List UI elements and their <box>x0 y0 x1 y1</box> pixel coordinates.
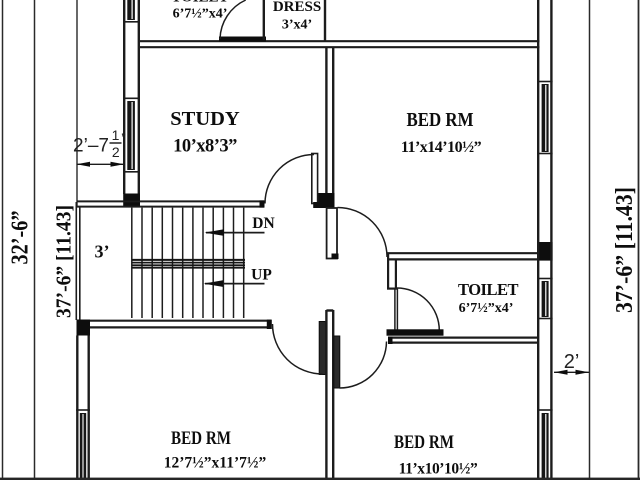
svg-text:2’–7: 2’–7 <box>73 136 109 157</box>
svg-text:37’-6” [11.43]: 37’-6” [11.43] <box>612 187 638 313</box>
svg-text:2: 2 <box>112 144 120 160</box>
svg-text:BED RM: BED RM <box>171 428 231 449</box>
svg-text:TOILET: TOILET <box>458 280 518 299</box>
svg-text:10’x8’3”: 10’x8’3” <box>173 137 237 157</box>
svg-text:2’: 2’ <box>564 351 580 373</box>
svg-text:TOILET: TOILET <box>171 0 228 6</box>
svg-text:1: 1 <box>112 127 120 143</box>
svg-text:6’7½”x4’: 6’7½”x4’ <box>173 7 228 22</box>
svg-text:11’x14’10½”: 11’x14’10½” <box>401 139 482 156</box>
svg-text:11’x10’10½”: 11’x10’10½” <box>399 461 478 478</box>
svg-text:UP: UP <box>251 267 272 284</box>
svg-text:DRESS: DRESS <box>273 0 321 15</box>
svg-text:3’x4’: 3’x4’ <box>282 18 312 33</box>
svg-text:37’-6” [11.43]: 37’-6” [11.43] <box>52 205 76 318</box>
svg-text:32’-6”: 32’-6” <box>8 211 34 265</box>
svg-text:12’7½”x11’7½”: 12’7½”x11’7½” <box>164 455 267 472</box>
svg-text:DN: DN <box>252 215 274 232</box>
svg-text:STUDY: STUDY <box>170 108 240 130</box>
svg-text:3’: 3’ <box>95 242 110 262</box>
svg-text:6’7½”x4’: 6’7½”x4’ <box>459 301 514 316</box>
svg-text:BED RM: BED RM <box>407 110 474 131</box>
svg-text:BED RM: BED RM <box>394 432 454 453</box>
svg-text:”: ” <box>121 131 125 146</box>
